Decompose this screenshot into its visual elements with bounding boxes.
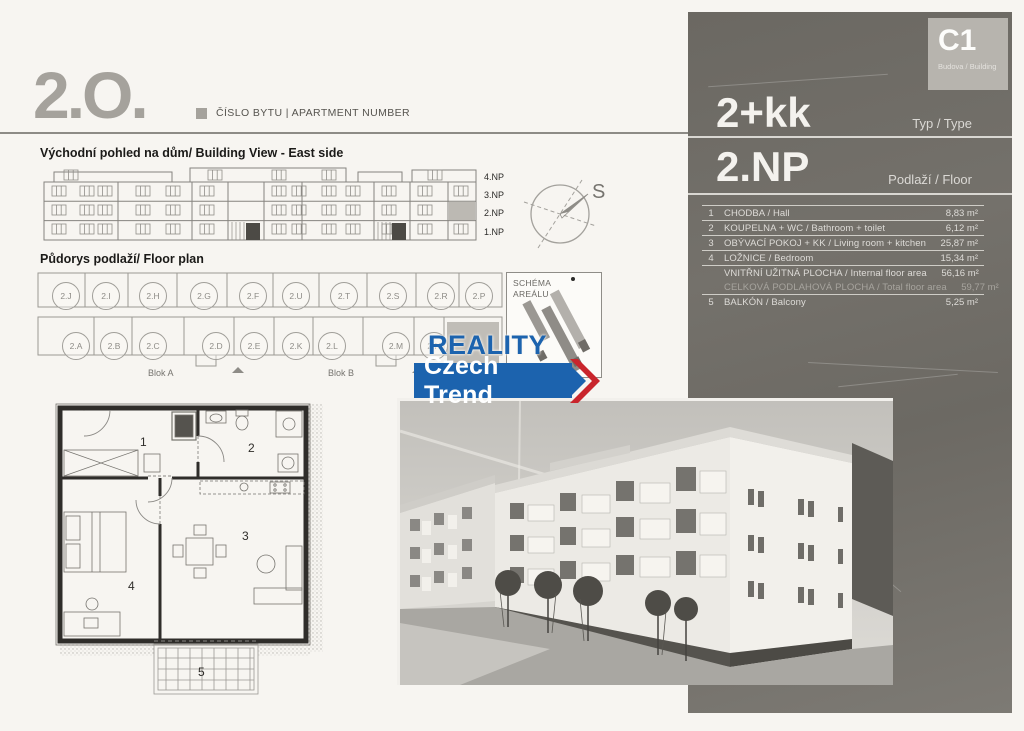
unit-badge: 2.K [282,332,310,360]
table-row: 2 KOUPELNA + WC / Bathroom + toilet 6,12… [702,220,984,235]
unit-badge: 2.F [239,282,267,310]
building-view-title: Východní pohled na dům/ Building View - … [40,146,343,160]
unit-badge: 2.I [92,282,120,310]
table-row: 5 BALKÓN / Balcony 5,25 m² [702,294,984,309]
room-number: 5 [702,297,720,308]
area-table: 1 CHODBA / Hall 8,83 m² 2 KOUPELNA + WC … [702,205,984,309]
apartment-number: 2.O. [33,62,146,128]
unit-badge: 2.J [52,282,80,310]
header-rule [0,132,688,134]
apartment-type-value: 2+kk [716,92,811,134]
plan-room-3: 3 [242,529,249,543]
table-row-internal-area: VNITŘNÍ UŽITNÁ PLOCHA / Internal floor a… [702,265,984,280]
room-area: 25,87 m² [926,238,984,249]
plan-room-2: 2 [248,441,255,455]
building-code: C1 [938,26,976,56]
divider [688,136,1012,138]
floor-value: 2.NP [716,146,809,188]
room-name: CELKOVÁ PODLAHOVÁ PLOCHA / Total floor a… [720,282,947,293]
entry-door [246,223,260,240]
table-row: 1 CHODBA / Hall 8,83 m² [702,205,984,220]
table-row: 3 OBÝVACÍ POKOJ + KK / Living room + kit… [702,235,984,250]
room-name: VNITŘNÍ UŽITNÁ PLOCHA / Internal floor a… [720,268,927,279]
room-name: LOŽNICE / Bedroom [720,253,926,264]
table-row: 4 LOŽNICE / Bedroom 15,34 m² [702,250,984,265]
divider [688,193,1012,195]
compass-north-label: S [592,181,605,203]
room-name: KOUPELNA + WC / Bathroom + toilet [720,223,926,234]
logo-chevron-icon [570,359,612,403]
room-name: OBÝVACÍ POKOJ + KK / Living room + kitch… [720,238,926,249]
floor-label-1np: 1.NP [484,227,504,237]
unit-badge: 2.B [100,332,128,360]
unit-badge: 2.R [427,282,455,310]
scan-scratch [838,374,957,388]
room-area: 56,16 m² [927,268,985,279]
compass-icon: S [520,170,620,262]
room-name: BALKÓN / Balcony [720,297,926,308]
unit-badge: 2.P [465,282,493,310]
unit-badge: 2.D [202,332,230,360]
room-number: 2 [702,223,720,234]
floor-label: Podlaží / Floor [888,172,972,187]
agency-logo: REALITY Czech Trend [414,330,610,400]
table-row-total-area: CELKOVÁ PODLAHOVÁ PLOCHA / Total floor a… [702,280,984,294]
room-number: 3 [702,238,720,249]
unit-badge: 2.T [330,282,358,310]
room-name: CHODBA / Hall [720,208,926,219]
room-number: 4 [702,253,720,264]
scan-scratch [808,362,998,373]
block-b-label: Blok B [328,368,354,378]
apartment-type-label: Typ / Type [912,116,972,131]
entry-door [392,223,406,240]
building-elevation-drawing: 4.NP 3.NP 2.NP 1.NP [40,166,518,248]
floor-plan-title: Půdorys podlaží/ Floor plan [40,252,204,266]
room-area: 8,83 m² [926,208,984,219]
plan-room-1: 1 [140,435,147,449]
floor-label-2np: 2.NP [484,208,504,218]
unit-badge: 2.S [379,282,407,310]
unit-badge: 2.U [282,282,310,310]
unit-badge: 2.A [62,332,90,360]
highlighted-unit-elevation [449,202,475,220]
unit-badge: 2.E [240,332,268,360]
unit-badge: 2.G [190,282,218,310]
block-a-arrow [232,367,244,373]
unit-badge: 2.H [139,282,167,310]
building-photo [397,398,893,685]
decor-square [196,108,207,119]
brochure-page: C1 Budova / Building 2+kk Typ / Type 2.N… [0,0,1024,731]
room-area: 59,77 m² [947,282,1005,293]
building-code-box: C1 Budova / Building [928,18,1008,90]
agency-logo-line2: Czech Trend [414,352,572,410]
room-number: 1 [702,208,720,219]
unit-badge: 2.C [139,332,167,360]
agency-logo-banner: Czech Trend [414,363,572,398]
room-area: 15,34 m² [926,253,984,264]
plan-room-5: 5 [198,665,205,679]
apartment-number-caption: ČÍSLO BYTU | APARTMENT NUMBER [216,107,410,119]
floor-label-3np: 3.NP [484,190,504,200]
floor-label-4np: 4.NP [484,172,504,182]
unit-badge: 2.L [318,332,346,360]
plan-room-4: 4 [128,579,135,593]
building-code-caption: Budova / Building [938,62,996,71]
apartment-floor-plan-drawing: 1 2 3 4 5 [48,396,340,714]
room-area: 5,25 m² [926,297,984,308]
scan-scratch [708,74,888,88]
room-area: 6,12 m² [926,223,984,234]
unit-badge: 2.M [382,332,410,360]
block-a-label: Blok A [148,368,174,378]
